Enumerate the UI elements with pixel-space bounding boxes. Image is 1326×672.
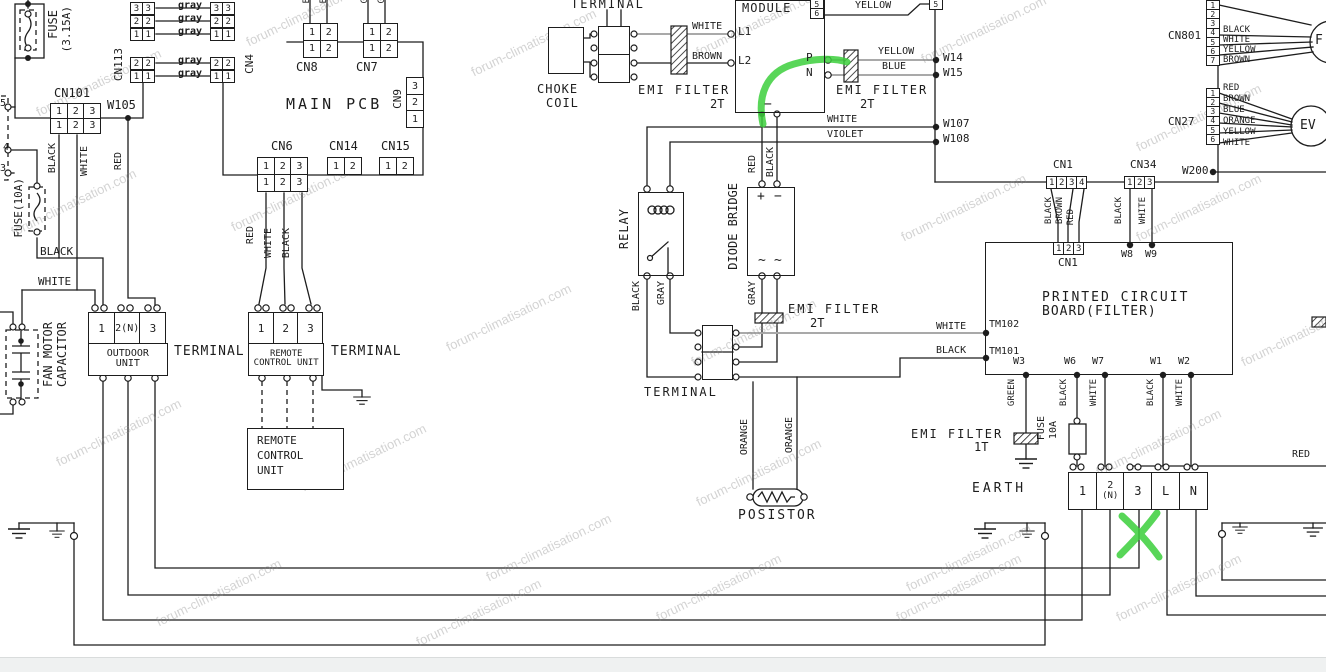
- wire-label-black: BLACK: [1060, 379, 1069, 406]
- pin-cell: 4: [1076, 176, 1087, 189]
- wire-label-white: WHITE: [1176, 379, 1185, 406]
- wire-label-black: BLACK: [48, 143, 58, 173]
- outdoor-terminal-pins: 12(N)3: [88, 312, 166, 344]
- pcb-filter-title: BOARD(FILTER): [1042, 305, 1157, 318]
- pin-cell: 2: [273, 312, 299, 344]
- ground-icon: [49, 531, 64, 537]
- pin-cell: N: [1179, 472, 1208, 510]
- pin-cell: 1: [50, 118, 68, 134]
- main-pcb-title: MAIN PCB: [286, 97, 382, 112]
- wire-label-gray: gray: [172, 27, 208, 37]
- emi-filter-turns: 2T: [710, 98, 724, 110]
- fan-motor-label: F: [1315, 34, 1323, 47]
- pin-cell: 2: [67, 118, 85, 134]
- connector-cn34: 123: [1124, 176, 1155, 189]
- diode-ac: ~: [758, 254, 766, 267]
- wire-label-white: WHITE: [1090, 379, 1099, 406]
- wire-label-gray: GRAY: [657, 281, 667, 305]
- remote-control-unit-text: CONTROL: [257, 449, 343, 464]
- wire-point-w9: W9: [1145, 250, 1157, 260]
- pin-cell: 1: [379, 157, 397, 175]
- wiring-diagram: forum-climatisation.com forum-climatisat…: [0, 0, 1326, 672]
- connector-label-cn7: CN7: [356, 61, 378, 73]
- pin-cell: L: [1151, 472, 1180, 510]
- connector-row: 11: [210, 28, 235, 41]
- wire-label-white: WHITE: [1139, 197, 1148, 224]
- filter-board-pin-5: 5: [929, 0, 943, 10]
- wire-label-red: RED: [114, 152, 124, 170]
- connector-row: 22: [130, 15, 155, 28]
- wire-label-gray: GRAY: [748, 281, 758, 305]
- wire-label-gray: gray: [172, 69, 208, 79]
- connector-label-cn9: CN9: [392, 89, 403, 109]
- connector-row: 22: [210, 57, 235, 70]
- connector-row: 11: [210, 70, 235, 83]
- outdoor-unit-label: UNIT: [116, 359, 140, 370]
- wire-label-orange: ORANGE: [740, 419, 750, 455]
- diode-bridge-label: DIODE BRIDGE: [727, 183, 739, 270]
- pin-cell: 2(N): [1096, 472, 1125, 510]
- pin-cell: 2: [396, 157, 414, 175]
- connector-label-cn801: CN801: [1168, 30, 1201, 41]
- pin-cell: 1: [142, 28, 155, 41]
- connector-row: 11: [130, 70, 155, 83]
- pin-cell: 1: [303, 40, 321, 58]
- pin-2: 2: [1107, 481, 1113, 492]
- connector-cn7-row: 12: [363, 23, 398, 41]
- pin-cell: 7: [1206, 55, 1220, 66]
- bottom-band: [0, 657, 1326, 672]
- outdoor-unit-box: OUTDOOR UNIT: [88, 343, 168, 376]
- wire-label-black: BLACK: [282, 228, 292, 258]
- edge-pin-3: 3: [0, 164, 6, 174]
- pin-cell: 3: [290, 174, 308, 192]
- wire-label-white: WHITE: [1223, 36, 1250, 45]
- pin-cell: 1: [406, 110, 424, 128]
- pin-cell: 3: [83, 118, 101, 134]
- connector-label-cn101: CN101: [54, 87, 90, 99]
- connector-label-cn27: CN27: [1168, 116, 1195, 127]
- wire-label-red: RED: [1292, 450, 1310, 460]
- pin-cell: 1: [88, 312, 115, 344]
- connector-label-cn1: CN1: [1053, 159, 1073, 170]
- power-terminal: 1 2(N) 3 L N: [1068, 472, 1208, 510]
- terminal-tm102: TM102: [989, 320, 1019, 330]
- pin-cell: 1: [257, 174, 275, 192]
- module-pin-n: N: [806, 67, 813, 78]
- ev-label: EV: [1300, 119, 1316, 132]
- pin-cell: 5: [929, 0, 943, 10]
- wire-label-black: BLACK: [936, 346, 966, 356]
- remote-control-unit-text: REMOTE: [257, 434, 343, 449]
- connector-cn8-row: 12: [303, 23, 338, 41]
- pin-cell: 2: [320, 40, 338, 58]
- wire-label-blue: BLUE: [1223, 106, 1245, 115]
- connector-label-cn113: CN113: [113, 48, 124, 81]
- emi-filter-turns: 2T: [810, 317, 824, 329]
- connector-label-cn4: CN4: [244, 54, 255, 74]
- connector-row: 22: [130, 57, 155, 70]
- wire-label-blue: BLUE: [882, 62, 906, 72]
- terminal-label: TERMINAL: [174, 345, 245, 358]
- wire-point-w2: W2: [1178, 357, 1190, 367]
- posistor-label: POSISTOR: [738, 509, 817, 522]
- ground-icon: [1015, 459, 1037, 468]
- pin-cell: 2: [274, 157, 292, 175]
- pin-cell: 1: [50, 103, 68, 119]
- terminal-block-top: [598, 54, 630, 83]
- connector-label-cn6: CN6: [271, 140, 293, 152]
- wire-point-w6: W6: [1064, 357, 1076, 367]
- emi-filter-label: EMI FILTER: [836, 84, 928, 96]
- wire-point-w14: W14: [943, 52, 963, 63]
- pin-cell: 2: [406, 94, 424, 112]
- wire-label-green: GREEN: [1008, 379, 1017, 406]
- terminal-block-top: [598, 26, 630, 55]
- wire-point-w105: W105: [107, 99, 136, 111]
- module-pin-p: P: [806, 52, 813, 63]
- choke-coil-label: CHOKE: [537, 83, 578, 95]
- wire-label-orange: ORANGE: [1223, 117, 1256, 126]
- pin-cell: 3: [1073, 242, 1084, 255]
- wire-label-red: RED: [1223, 84, 1239, 93]
- pcb-filter-title: PRINTED CIRCUIT: [1042, 291, 1189, 304]
- diode-bridge-box: [747, 187, 795, 276]
- posistor-icon: [753, 489, 803, 506]
- fuse-10a-bottom-rating: 10A: [1049, 421, 1059, 439]
- pin-cell: 2: [67, 103, 85, 119]
- pin-cell: 3: [290, 157, 308, 175]
- emi-filter-label: EMI FILTER: [788, 303, 880, 315]
- terminal-label: TERMINAL: [331, 345, 402, 358]
- remote-terminal-pins: 123: [248, 312, 323, 344]
- pin-cell: 1: [222, 70, 235, 83]
- edge-pin-5: 5: [0, 99, 6, 109]
- wire-label-b: B: [303, 0, 312, 3]
- connector-cn1-pcb: 123: [1053, 242, 1084, 255]
- wire-label-black: BLACK: [766, 147, 776, 177]
- module-minus: −: [764, 98, 772, 111]
- connector-row: 22: [210, 15, 235, 28]
- wire-point-w3: W3: [1013, 357, 1025, 367]
- wire-label-black: BLACK: [1045, 197, 1054, 224]
- fuse-315-label: FUSE: [47, 10, 59, 39]
- pin-cell: 1: [327, 157, 345, 175]
- module-pin-6: 6: [810, 8, 824, 19]
- wire-label-orange: ORANGE: [785, 417, 795, 453]
- diode-minus: −: [774, 190, 782, 203]
- emi-filter-label: EMI FILTER: [638, 84, 730, 96]
- wire-label-white: WHITE: [1223, 139, 1250, 148]
- pin-cell: 1: [257, 157, 275, 175]
- pin-cell: 3: [297, 312, 323, 344]
- wire-label-black: BLACK: [1223, 26, 1250, 35]
- ground-icon: [8, 529, 30, 538]
- connector-cn27: 123456: [1206, 88, 1220, 145]
- pin-cell: 2: [344, 157, 362, 175]
- pin-cell: 3: [222, 2, 235, 15]
- wire-point-w108: W108: [943, 133, 970, 144]
- fuse-10a-label: FUSE(10A): [13, 178, 24, 238]
- connector-cn801: 1234567: [1206, 0, 1220, 66]
- pin-cell: 2(N): [114, 312, 141, 344]
- connector-cn1-top: 1234: [1046, 176, 1087, 189]
- connector-label-cn34: CN34: [1130, 159, 1157, 170]
- connector-cn8-row: 12: [303, 40, 338, 58]
- wire-label-yellow: YELLOW: [1223, 128, 1256, 137]
- remote-control-unit-box: REMOTE CONTROL UNIT: [248, 343, 324, 376]
- pin-cell: 2: [380, 40, 398, 58]
- pin-2n: (N): [1102, 492, 1118, 501]
- wire-label-brown: BROWN: [1056, 197, 1065, 224]
- terminal-label: TERMINAL: [571, 0, 645, 10]
- wire-label-gray: gray: [172, 14, 208, 24]
- pin-cell: 2: [320, 23, 338, 41]
- connector-cn101-row: 123: [50, 118, 101, 134]
- connector-cn14-row: 12: [327, 157, 362, 175]
- module-title: MODULE: [742, 2, 791, 14]
- connector-row: 33: [210, 2, 235, 15]
- module-pin-l2: L2: [738, 55, 751, 66]
- pin-cell: 1: [363, 23, 381, 41]
- pin-cell: 3: [142, 2, 155, 15]
- pin-cell: 6: [1206, 134, 1220, 145]
- wire-label-red: RED: [748, 155, 758, 173]
- remote-control-unit-block: REMOTE CONTROL UNIT: [247, 428, 344, 490]
- pin-cell: 2: [380, 23, 398, 41]
- pin-cell: 2: [142, 15, 155, 28]
- diode-ac: ~: [774, 254, 782, 267]
- wire-label-white: WHITE: [936, 322, 966, 332]
- wire-label-white: WHITE: [827, 115, 857, 125]
- emi-filter-2t-icon: [844, 50, 858, 82]
- wire-label-yellow: YELLOW: [855, 1, 891, 11]
- emi-filter-2t-icon: [671, 26, 687, 74]
- connector-cn6-row: 123: [257, 157, 308, 175]
- fuse-10a-bottom-label: FUSE: [1037, 416, 1047, 440]
- pin-cell: 3: [406, 77, 424, 95]
- remote-control-unit-text: UNIT: [257, 464, 343, 479]
- pin-cell: 3: [1123, 472, 1152, 510]
- connector-label-cn15: CN15: [381, 140, 410, 152]
- pin-cell: 2: [142, 57, 155, 70]
- relay-label: RELAY: [618, 208, 630, 249]
- pin-cell: 2: [222, 57, 235, 70]
- wire-label-b: B: [320, 0, 329, 3]
- choke-coil-label: COIL: [546, 97, 579, 109]
- pin-cell: 1: [1068, 472, 1097, 510]
- pin-cell: 6: [810, 8, 824, 19]
- wire-label-brown: BROWN: [1223, 95, 1250, 104]
- wire-label-violet: VIOLET: [827, 130, 863, 140]
- wire-point-w7: W7: [1092, 357, 1104, 367]
- pin-cell: 1: [142, 70, 155, 83]
- earth-label: EARTH: [972, 482, 1026, 495]
- wire-label-red: RED: [1067, 209, 1076, 225]
- wire-point-w8: W8: [1121, 250, 1133, 260]
- wire-label-gray: gray: [172, 56, 208, 66]
- wire-label-black: BLACK: [1115, 197, 1124, 224]
- wire-label-white: WHITE: [264, 228, 274, 258]
- emi-filter-turns: 2T: [860, 98, 874, 110]
- emi-filter-1t-icon: [1014, 433, 1038, 444]
- connector-row: 11: [130, 28, 155, 41]
- fuse-315-rating: (3.15A): [61, 6, 72, 52]
- relay-box: [638, 192, 684, 276]
- edge-pin-4: 4: [3, 143, 9, 153]
- wire-label-white: WHITE: [38, 276, 71, 287]
- fuse-10a-bottom-box: [1069, 424, 1086, 454]
- pin-cell: 3: [83, 103, 101, 119]
- wire-point-w200: W200: [1182, 165, 1209, 176]
- connector-cn6-row: 123: [257, 174, 308, 192]
- emi-filter-turns: 1T: [974, 441, 988, 453]
- wire-label-yellow: YELLOW: [878, 47, 914, 57]
- wire-label-black: BLACK: [40, 246, 73, 257]
- wire-label-brown: BROWN: [1223, 56, 1250, 65]
- connector-cn101-row: 123: [50, 103, 101, 119]
- ground-icon: [1232, 527, 1247, 533]
- wire-label-black: BLACK: [632, 281, 642, 311]
- connector-row: 33: [130, 2, 155, 15]
- wire-label-white: WHITE: [692, 22, 722, 32]
- module-pin-l1: L1: [738, 26, 751, 37]
- wire-point-w1: W1: [1150, 357, 1162, 367]
- fuse-315-element-icon: [25, 16, 31, 48]
- choke-coil-box: [548, 27, 584, 74]
- terminal-block-mid: [702, 325, 733, 380]
- wire-point-w15: W15: [943, 67, 963, 78]
- ground-icon: [1303, 528, 1323, 536]
- fan-motor-capacitor-label: FAN MOTOR: [42, 322, 54, 387]
- pin-cell: 2: [222, 15, 235, 28]
- fan-motor-capacitor-label: CAPACITOR: [56, 322, 68, 387]
- terminal-label: TERMINAL: [644, 386, 718, 398]
- connector-cn15-row: 12: [379, 157, 414, 175]
- wire-label-black: BLACK: [1147, 379, 1156, 406]
- pin-cell: 1: [222, 28, 235, 41]
- wire-label-red: RED: [246, 226, 256, 244]
- wire-point-w107: W107: [943, 118, 970, 129]
- pin-cell: 3: [1144, 176, 1155, 189]
- connector-cn9: 321: [406, 77, 424, 128]
- wire-label-g: G: [361, 0, 370, 3]
- wire-label-brown: BROWN: [692, 52, 722, 62]
- pin-cell: 1: [303, 23, 321, 41]
- pin-cell: 3: [139, 312, 166, 344]
- connector-cn7-row: 12: [363, 40, 398, 58]
- wire-label-white: WHITE: [80, 146, 90, 176]
- emi-filter-label: EMI FILTER: [911, 428, 1003, 440]
- diode-plus: +: [757, 190, 765, 203]
- wire-label-yellow: YELLOW: [1223, 46, 1256, 55]
- connector-label-cn14: CN14: [329, 140, 358, 152]
- pin-cell: 1: [363, 40, 381, 58]
- remote-unit-label: CONTROL UNIT: [254, 359, 319, 368]
- connector-label-cn1: CN1: [1058, 257, 1078, 268]
- wire-label-g: G: [378, 0, 387, 3]
- pin-cell: 2: [274, 174, 292, 192]
- ground-icon: [353, 397, 371, 404]
- connector-label-cn8: CN8: [296, 61, 318, 73]
- wire-label-gray: gray: [172, 1, 208, 11]
- pin-cell: 1: [248, 312, 274, 344]
